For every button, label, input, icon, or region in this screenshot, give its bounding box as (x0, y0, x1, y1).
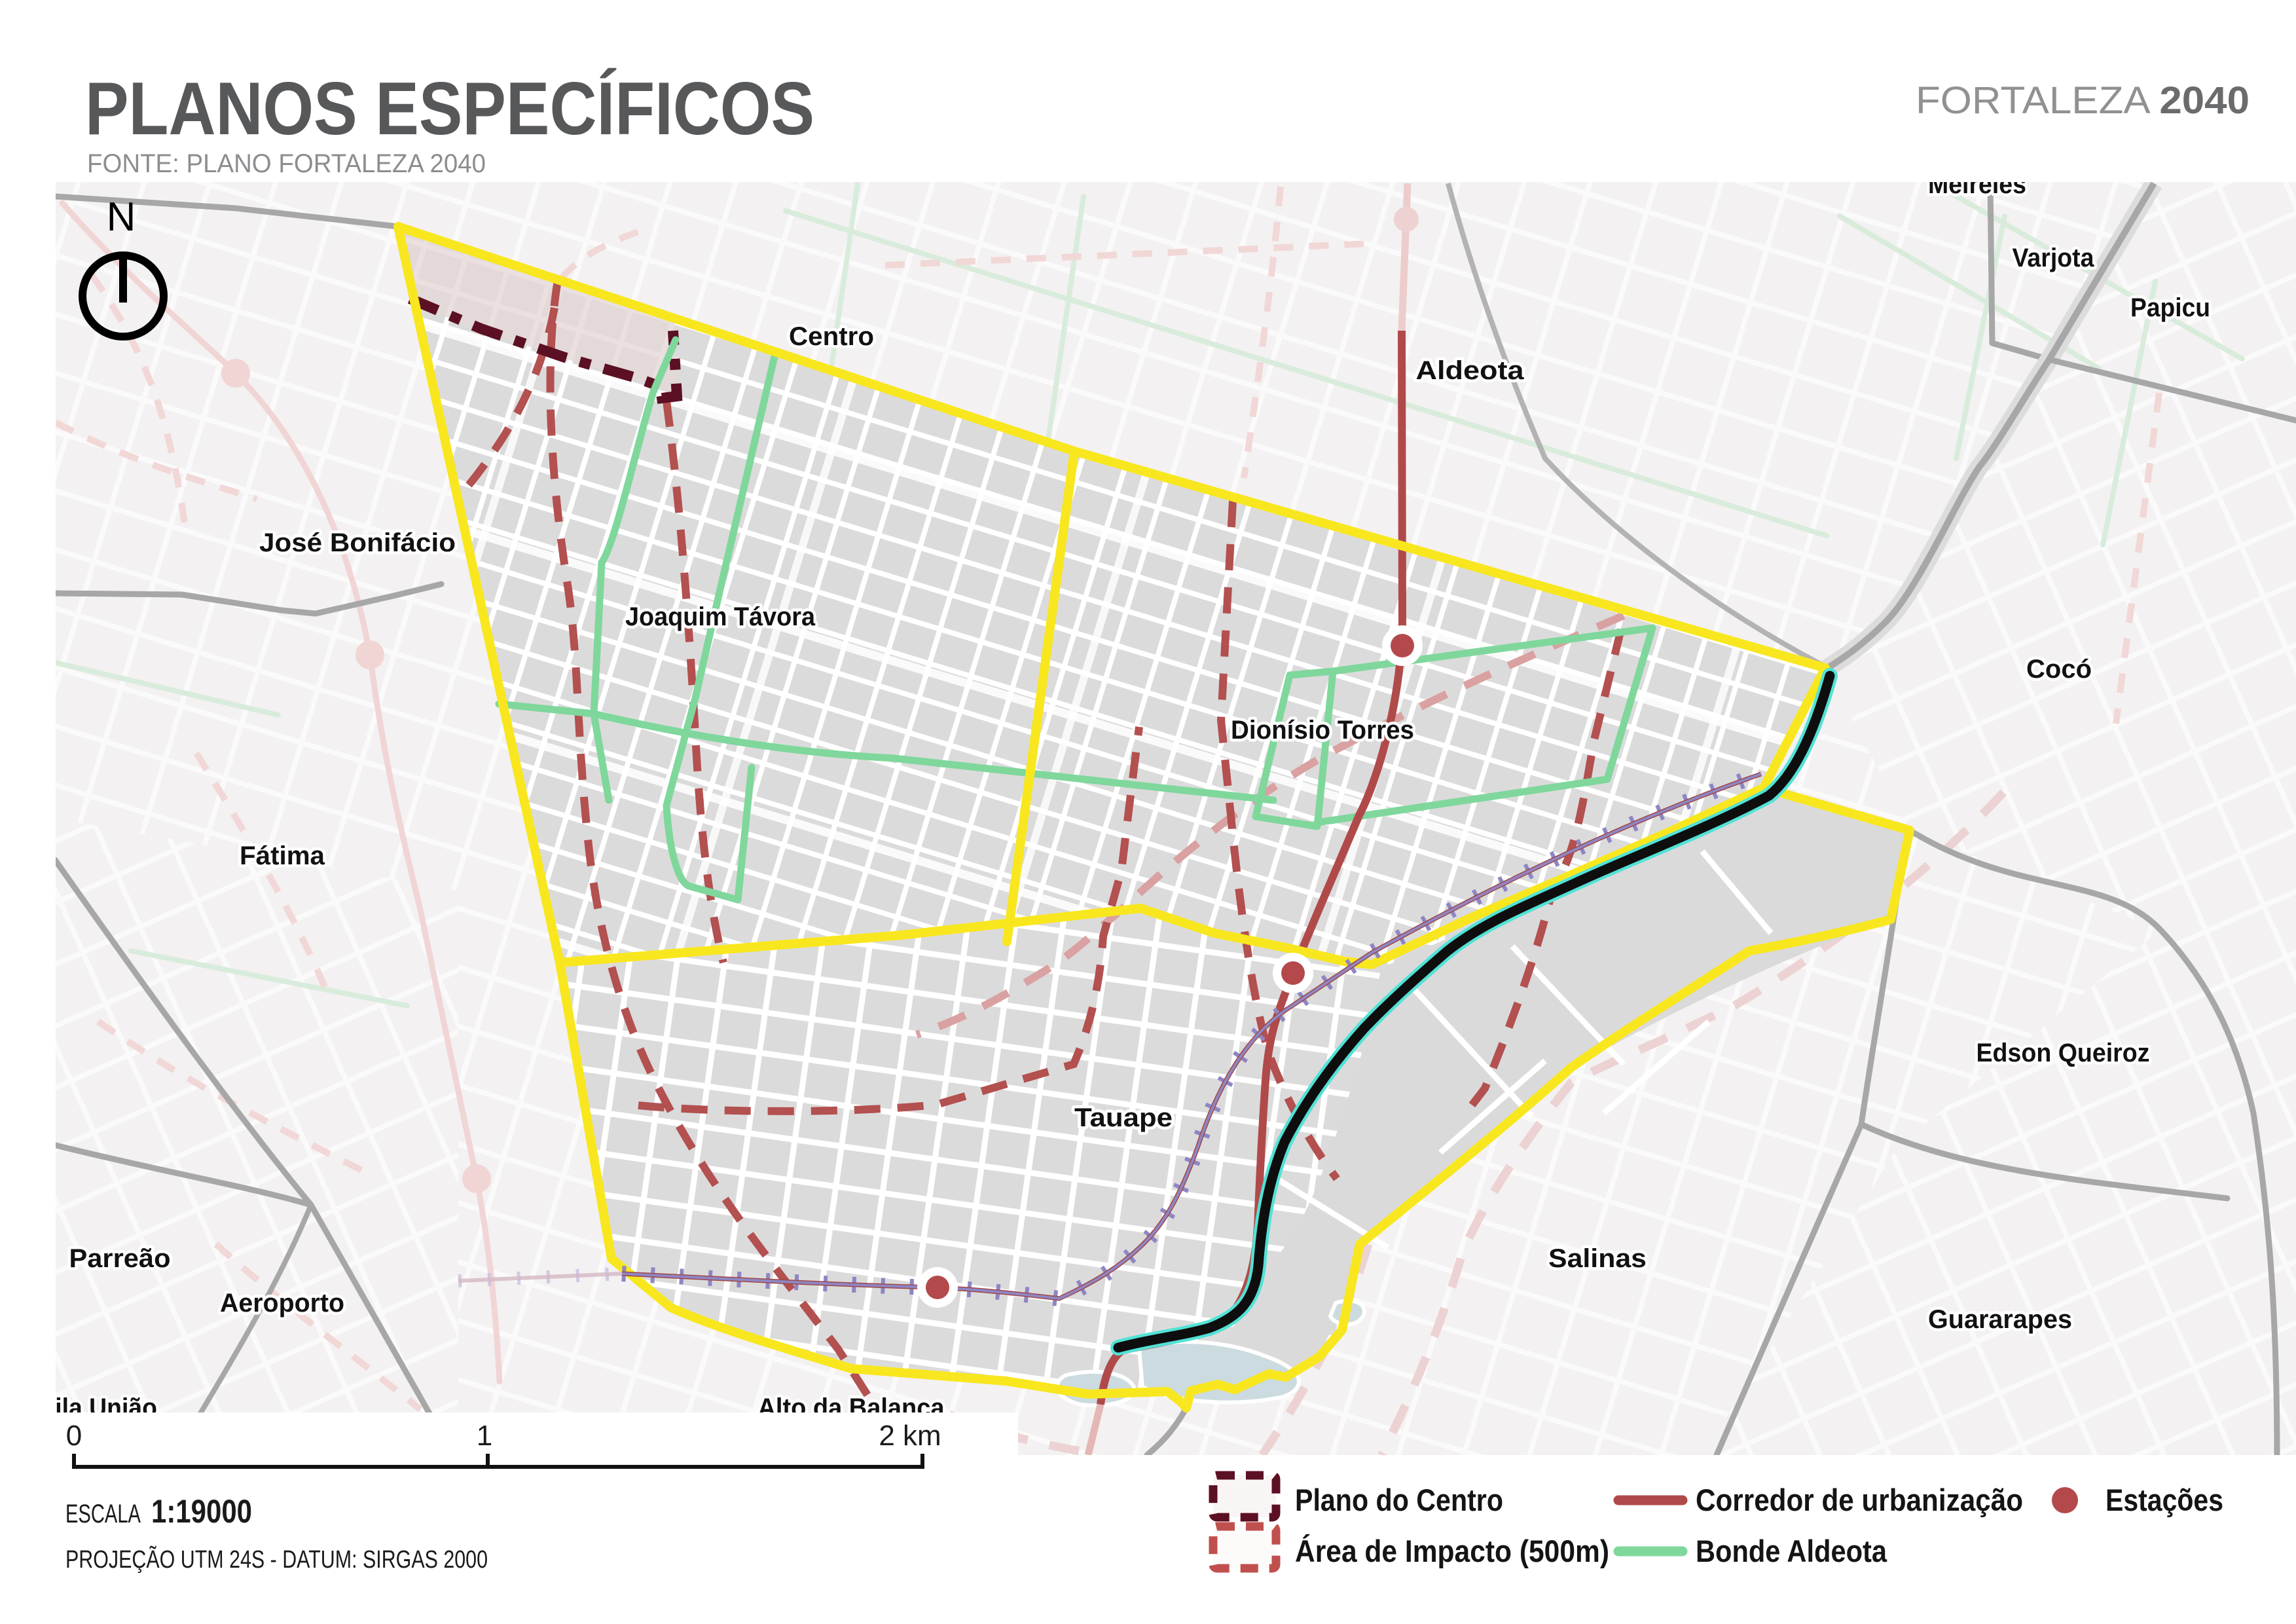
svg-text:Plano do Centro: Plano do Centro (1295, 1483, 1503, 1517)
svg-text:Salinas: Salinas (1548, 1244, 1647, 1273)
svg-text:Edson Queiroz: Edson Queiroz (1977, 1039, 2150, 1067)
svg-text:N: N (107, 194, 136, 240)
svg-text:FORTALEZA 2040: FORTALEZA 2040 (1916, 79, 2250, 122)
svg-text:Guararapes: Guararapes (1928, 1305, 2072, 1334)
svg-text:PLANOS ESPECÍFICOS: PLANOS ESPECÍFICOS (85, 67, 814, 151)
svg-text:Dionísio Torres: Dionísio Torres (1231, 716, 1414, 745)
svg-text:Área de Impacto (500m): Área de Impacto (500m) (1295, 1534, 1609, 1568)
svg-text:José Bonifácio: José Bonifácio (259, 528, 456, 557)
svg-text:Joaquim Távora: Joaquim Távora (625, 602, 816, 631)
svg-text:Centro: Centro (789, 322, 874, 351)
svg-text:Corredor de urbanização: Corredor de urbanização (1696, 1483, 2023, 1517)
svg-text:Bonde Aldeota: Bonde Aldeota (1696, 1534, 1887, 1568)
svg-text:1:19000: 1:19000 (151, 1493, 252, 1530)
svg-text:2 km: 2 km (879, 1420, 941, 1452)
svg-text:Papicu: Papicu (2130, 293, 2210, 322)
svg-text:Estações: Estações (2105, 1483, 2223, 1517)
svg-text:ESCALA: ESCALA (65, 1500, 141, 1528)
svg-text:Fátima: Fátima (240, 841, 325, 870)
svg-text:Aeroporto: Aeroporto (220, 1289, 344, 1318)
svg-text:Cocó: Cocó (2026, 655, 2092, 684)
svg-text:Tauape: Tauape (1074, 1103, 1173, 1132)
svg-text:0: 0 (66, 1420, 82, 1452)
svg-text:FONTE: PLANO FORTALEZA 2040: FONTE: PLANO FORTALEZA 2040 (87, 149, 486, 178)
svg-text:Aldeota: Aldeota (1416, 356, 1525, 385)
svg-text:PROJEÇÃO UTM 24S - DATUM: SIRG: PROJEÇÃO UTM 24S - DATUM: SIRGAS 2000 (65, 1545, 488, 1574)
svg-text:Varjota: Varjota (2013, 244, 2095, 272)
svg-text:Parreão: Parreão (69, 1244, 171, 1273)
svg-text:1: 1 (477, 1420, 492, 1452)
